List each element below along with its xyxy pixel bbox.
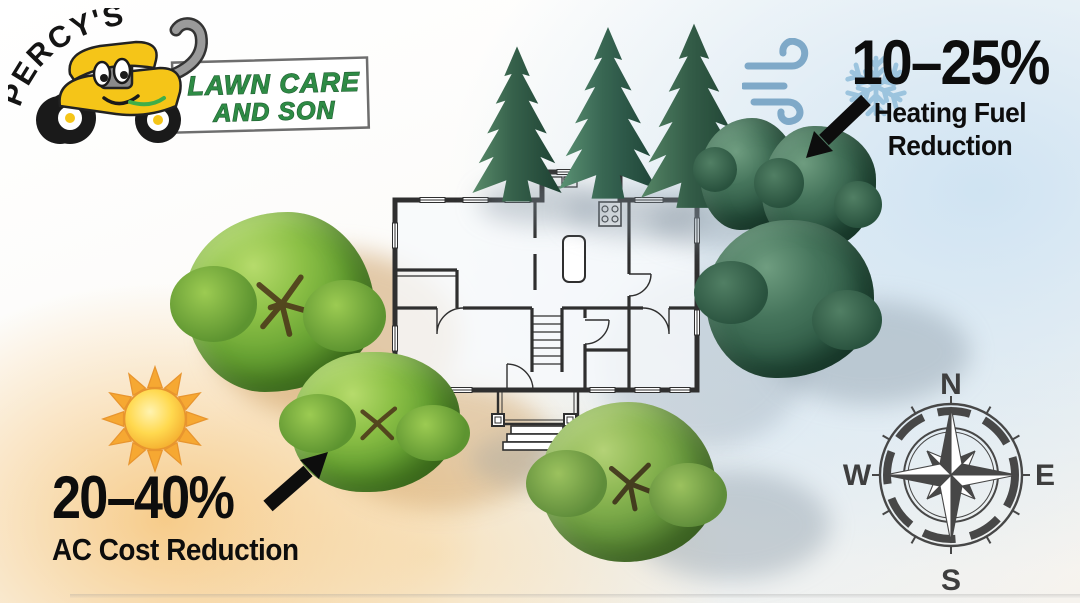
logo-line2: AND SON	[212, 96, 336, 127]
compass-rose: N E S W	[840, 358, 1060, 600]
compass-label-south: S	[941, 564, 961, 597]
logo-label-box: LAWN CARE AND SON	[172, 58, 369, 133]
compass-label-east: E	[1035, 459, 1055, 492]
company-logo: LAWN CARE AND SON PERCY'S	[8, 8, 378, 153]
arrow-down-left-icon	[802, 92, 878, 164]
bottom-edge-line	[70, 594, 1080, 598]
infographic-scene: 10–25% Heating Fuel Reduction 20–40% AC …	[0, 0, 1080, 603]
branch-marks	[242, 266, 322, 342]
sun-icon	[101, 365, 209, 473]
heating-value: 10–25%	[838, 32, 1061, 95]
compass-label-west: W	[843, 459, 872, 492]
shade-tree-south	[540, 402, 716, 562]
branch-marks	[593, 450, 667, 517]
arrow-up-right-icon	[258, 448, 334, 512]
compass-label-north: N	[940, 368, 962, 401]
cooling-label: AC Cost Reduction	[52, 532, 304, 568]
branch-marks	[342, 394, 413, 453]
